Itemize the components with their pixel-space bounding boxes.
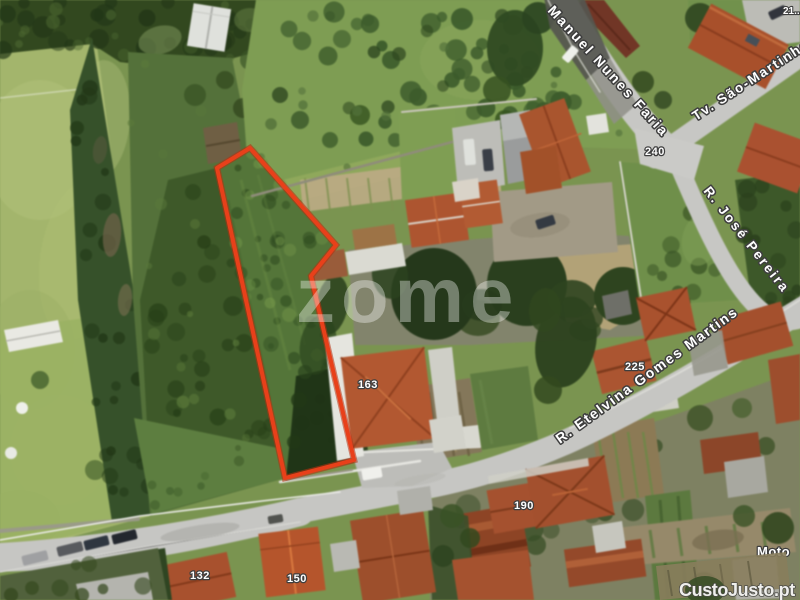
svg-text:225: 225 — [625, 361, 645, 373]
svg-text:190: 190 — [514, 500, 534, 512]
svg-text:132: 132 — [190, 570, 210, 582]
svg-text:150: 150 — [287, 573, 307, 585]
svg-text:163: 163 — [358, 379, 378, 391]
svg-text:21...: 21... — [783, 6, 800, 17]
svg-text:zome: zome — [296, 251, 519, 339]
svg-text:240: 240 — [645, 146, 665, 158]
svg-text:CustoJusto.pt: CustoJusto.pt — [679, 580, 795, 600]
